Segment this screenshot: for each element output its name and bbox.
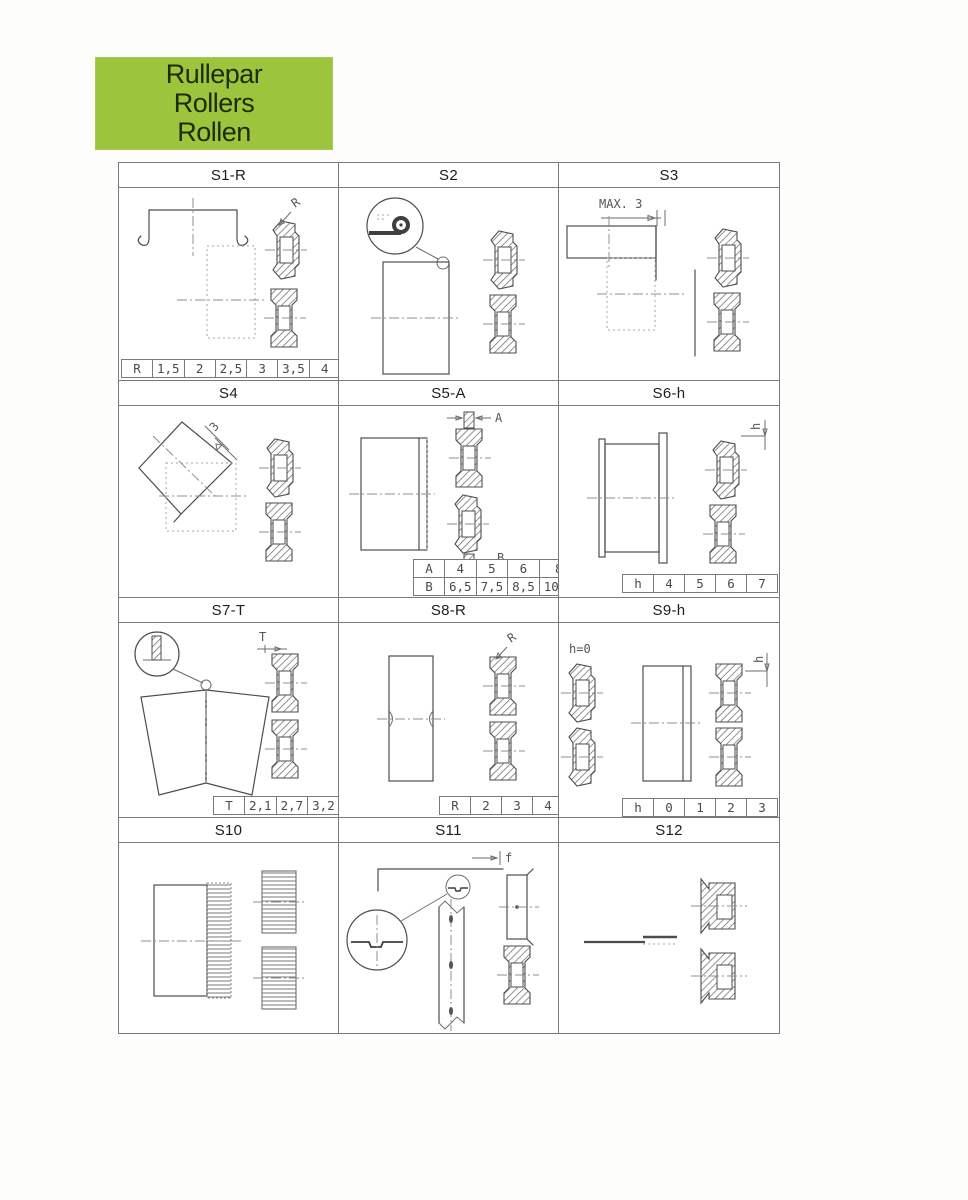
cell-s1r: R R1,522,533,549 (119, 188, 339, 381)
spec-table-cell: 6 (716, 575, 747, 593)
spec-table-s8r: R234 (439, 796, 559, 815)
cell-title-s5a: S5-A (339, 381, 559, 406)
cell-title-s2: S2 (339, 163, 559, 188)
spec-table-row: h0123 (623, 799, 778, 817)
spec-table-row: R234 (440, 797, 560, 815)
dim-label-max3: MAX. 3 (599, 197, 642, 211)
spec-table-cell: 5 (476, 560, 508, 578)
drawing-s6h: h (559, 406, 779, 598)
title-text: S12 (655, 822, 683, 839)
spec-table-cell: R (440, 797, 471, 815)
dim-label-r: R (505, 629, 520, 645)
cell-title-s11: S11 (339, 818, 559, 843)
drawing-s3: MAX. 3 (559, 188, 779, 381)
spec-table-cell: 6 (508, 560, 540, 578)
spec-table-row: R1,522,533,549 (122, 360, 340, 378)
drawing-s2 (339, 188, 559, 381)
title-text: S1-R (211, 167, 246, 184)
title-text: S4 (219, 385, 238, 402)
cell-s8r: R R234 (339, 623, 559, 818)
cell-s3: MAX. 3 (559, 188, 779, 381)
cell-title-s9h: S9-h (559, 598, 779, 623)
title-text: S7-T (212, 602, 246, 619)
cell-title-s1r: S1-R (119, 163, 339, 188)
cell-title-s7t: S7-T (119, 598, 339, 623)
drawing-s12 (559, 843, 779, 1033)
spec-table-cell: 4 (445, 560, 477, 578)
spec-table-cell: 1 (685, 799, 716, 817)
title-line-english: Rollers (174, 89, 255, 118)
dim-label-a: A (495, 411, 503, 425)
dim-label-3: 3 (207, 419, 222, 434)
cell-s11: f (339, 843, 559, 1033)
dim-label-h: h (749, 423, 763, 430)
cell-s10 (119, 843, 339, 1033)
spec-table-s7t: T2,12,73,2 (213, 796, 339, 815)
spec-table-cell: 2 (716, 799, 747, 817)
spec-table-cell: 2 (471, 797, 502, 815)
dim-label-r: R (289, 194, 304, 210)
spec-table-cell: 8,5 (508, 578, 540, 596)
spec-table-cell: 2,5 (215, 360, 247, 378)
spec-table-cell: 4 (654, 575, 685, 593)
spec-table-row: T2,12,73,2 (214, 797, 340, 815)
cell-title-s12: S12 (559, 818, 779, 843)
spec-table-cell: A (414, 560, 445, 578)
spec-table-cell: 3,2 (308, 797, 339, 815)
spec-table-s9h: h0123 (622, 798, 778, 817)
spec-table-cell: h (623, 799, 654, 817)
spec-table-cell: 3 (502, 797, 533, 815)
spec-table-cell: 1,5 (153, 360, 185, 378)
spec-table-row: A4568 (414, 560, 560, 578)
title-text: S11 (435, 822, 461, 839)
cell-s12 (559, 843, 779, 1033)
spec-table-cell: 5 (685, 575, 716, 593)
spec-table-cell: 3 (747, 799, 778, 817)
cell-title-s4: S4 (119, 381, 339, 406)
section-title-block: Rullepar Rollers Rollen (95, 57, 333, 150)
drawing-s8r: R (339, 623, 559, 818)
title-line-danish: Rullepar (166, 60, 263, 89)
drawing-s4: 3 (119, 406, 339, 598)
spec-table-cell: 10,5 (539, 578, 559, 596)
spec-table-cell: 0 (654, 799, 685, 817)
spec-table-s5a: A4568B6,57,58,510,5 (413, 559, 559, 596)
cell-title-s10: S10 (119, 818, 339, 843)
spec-table-row: h4567 (623, 575, 778, 593)
title-text: S2 (439, 167, 458, 184)
spec-table-cell: 4 (309, 360, 339, 378)
drawing-s1r: R (119, 188, 339, 381)
cell-s9h: h=0 h h0123 (559, 623, 779, 818)
spec-table-cell: 7 (747, 575, 778, 593)
spec-table-cell: 2,7 (276, 797, 308, 815)
title-text: S8-R (431, 602, 466, 619)
dim-label-t: T (259, 630, 266, 644)
spec-table-cell: 3 (247, 360, 278, 378)
cell-title-s3: S3 (559, 163, 779, 188)
spec-table-cell: h (623, 575, 654, 593)
cell-s2 (339, 188, 559, 381)
spec-table-cell: B (414, 578, 445, 596)
roller-grid: S1-R S2 S3 R R1,522,533,549 (118, 162, 780, 1034)
cell-title-s6h: S6-h (559, 381, 779, 406)
spec-table-cell: R (122, 360, 153, 378)
cell-s6h: h h4567 (559, 406, 779, 598)
spec-table-s1r: R1,522,533,549 (121, 359, 339, 378)
spec-table-cell: 8 (539, 560, 559, 578)
drawing-s7t: T (119, 623, 339, 818)
spec-table-cell: 6,5 (445, 578, 477, 596)
drawing-s11: f (339, 843, 559, 1033)
cell-s7t: T T2,12,73,2 (119, 623, 339, 818)
dim-label-h: h (752, 656, 766, 663)
spec-table-cell: 4 (533, 797, 560, 815)
spec-table-cell: 7,5 (476, 578, 508, 596)
cell-s5a: A B A4568B6,57,58,510,5 (339, 406, 559, 598)
spec-table-row: B6,57,58,510,5 (414, 578, 560, 596)
drawing-s9h: h=0 h (559, 623, 779, 818)
title-text: S6-h (653, 385, 686, 402)
note-h0: h=0 (569, 642, 591, 656)
title-text: S9-h (653, 602, 686, 619)
cell-title-s8r: S8-R (339, 598, 559, 623)
spec-table-s6h: h4567 (622, 574, 778, 593)
drawing-s10 (119, 843, 339, 1033)
cell-s4: 3 (119, 406, 339, 598)
spec-table-cell: 2,1 (245, 797, 277, 815)
title-text: S3 (660, 167, 679, 184)
spec-table-cell: T (214, 797, 245, 815)
spec-table-cell: 2 (184, 360, 215, 378)
title-text: S10 (215, 822, 243, 839)
spec-table-cell: 3,5 (278, 360, 310, 378)
title-line-german: Rollen (177, 118, 251, 147)
title-text: S5-A (431, 385, 466, 402)
dim-label-f: f (505, 851, 512, 865)
